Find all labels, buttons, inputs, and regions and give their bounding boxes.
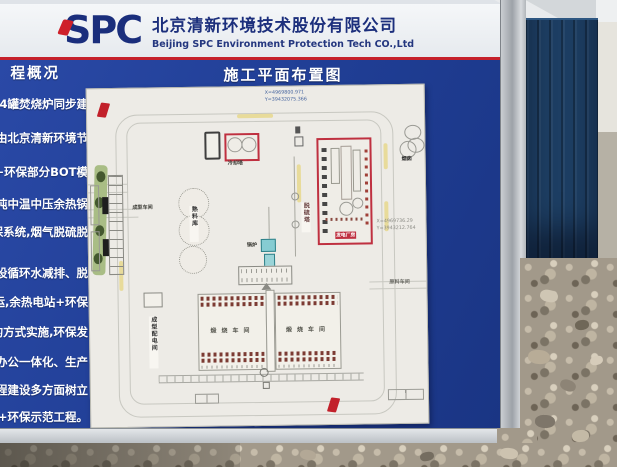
site-plan-drawing: X=4969800.971 Y=39432075.366 冷却塔	[86, 84, 430, 429]
sidebar-line: 电+环保示范工程。	[0, 409, 88, 425]
cooling-tower-circle	[241, 137, 256, 152]
building-strip	[108, 175, 124, 275]
equipment-row-icon	[321, 148, 327, 236]
calcination-hall-left: 煅烧车间	[198, 293, 268, 371]
desulfurization-tower-label: 脱硫塔	[301, 202, 310, 232]
kiln-row	[278, 295, 338, 300]
edge-building	[91, 231, 101, 271]
valve-icon	[292, 220, 300, 228]
site-sign-photo: SPC 北京清新环境技术股份有限公司 Beijing SPC Environme…	[0, 0, 617, 467]
raw-material-label: 原料车间	[389, 279, 409, 285]
sign-board: SPC 北京清新环境技术股份有限公司 Beijing SPC Environme…	[0, 0, 500, 447]
coordinate-x: X=4969736.29	[376, 218, 415, 224]
equipment-rect	[330, 148, 340, 184]
equipment-circle	[352, 198, 363, 209]
equipment-rect	[340, 146, 352, 200]
board-body: 施工平面布置图 程概况 64罐焚烧炉同步建 由北京清新环境节 C+环保部分BOT…	[0, 60, 500, 428]
cooling-tower-circle	[227, 137, 242, 152]
board-header: SPC 北京清新环境技术股份有限公司 Beijing SPC Environme…	[0, 4, 500, 57]
tick-row	[241, 278, 289, 283]
kiln-row	[278, 301, 338, 306]
kiln-row	[201, 352, 264, 357]
forming-workshop-label: 成型车间	[132, 204, 152, 210]
spc-logo: SPC	[64, 8, 141, 52]
tick-row	[202, 365, 265, 369]
equipment-dots	[365, 149, 369, 229]
tree-icon	[96, 171, 105, 182]
dark-building	[102, 197, 108, 214]
power-plant-building: 发电厂房	[316, 137, 372, 245]
kiln-row	[201, 358, 264, 363]
sidebar-line: 设的方式实施,环保发	[0, 324, 88, 340]
kiln-row	[278, 357, 338, 362]
legend-box-icon	[294, 136, 303, 146]
sidebar-heading: 程概况	[11, 62, 61, 83]
boiler-label: 锅炉	[247, 242, 257, 248]
valve-icon	[291, 192, 299, 200]
stone	[535, 414, 556, 428]
plan-title: 施工平面布置图	[203, 64, 363, 85]
equipment-rect	[353, 150, 362, 192]
clinker-silo-label: 熟料库	[189, 206, 199, 242]
coordinate-x: X=4969800.971	[265, 89, 307, 95]
cooling-tower-box	[224, 133, 259, 161]
forming-distribution-room-label: 成型配电间	[149, 316, 159, 368]
chimney-label: 烟囱	[402, 156, 412, 162]
kiln-row	[278, 351, 338, 356]
company-name-cn: 北京清新环境技术股份有限公司	[152, 12, 414, 36]
tick-row	[241, 269, 289, 274]
yellow-highlight	[237, 114, 273, 119]
sidebar-line: 投运,余热电站+环保	[0, 294, 88, 310]
sidebar-line: 步建设循环水减排、脱	[0, 265, 88, 281]
edge-building	[90, 185, 100, 225]
road-line	[369, 288, 426, 290]
coordinate-y: Y=3943212.764	[377, 225, 416, 231]
small-circle	[260, 368, 269, 377]
sidebar-line: 程、工程建设多方面树立	[0, 382, 88, 398]
cooling-tower-label: 冷却塔	[228, 160, 243, 166]
sidebar-line: 吨中温中压余热锅	[0, 196, 88, 212]
sidebar-line: 64罐焚烧炉同步建	[0, 96, 88, 112]
blue-container	[525, 18, 598, 268]
sidebar-line: 由北京清新环境节	[0, 130, 88, 146]
red-flag-icon	[97, 103, 110, 118]
boiler-block	[261, 239, 276, 252]
company-name-en: Beijing SPC Environment Protection Tech …	[152, 39, 414, 50]
kiln-row	[201, 296, 264, 301]
kiln-head-structure	[238, 266, 292, 286]
yellow-highlight	[383, 143, 387, 169]
sidebar-line: 保系统,烟气脱硫脱	[0, 224, 88, 240]
board-shadow	[0, 443, 240, 467]
company-name-block: 北京清新环境技术股份有限公司 Beijing SPC Environment P…	[152, 12, 414, 50]
gate-boxes	[195, 394, 219, 404]
kiln-row	[201, 302, 264, 307]
sidebar-line: C+环保部分BOT模	[0, 164, 88, 180]
outlined-building	[204, 132, 220, 160]
calcination-hall-right: 煅烧车间	[275, 292, 342, 370]
calcination-label-left: 煅烧车间	[199, 325, 266, 335]
power-plant-label: 发电厂房	[335, 232, 356, 239]
dark-building	[103, 239, 109, 256]
coordinates-right: X=4969736.29 Y=3943212.764	[376, 218, 425, 233]
coordinates-top: X=4969800.971 Y=39432075.366	[265, 89, 318, 104]
bright-edge	[598, 22, 617, 132]
sidebar-line: 生产办公一体化、生产	[0, 354, 88, 370]
utility-box	[143, 292, 162, 307]
tick-row	[279, 364, 339, 368]
gate-boxes	[388, 389, 424, 401]
legend-icon	[295, 126, 300, 133]
equipment-dots	[325, 218, 363, 222]
coordinate-y: Y=39432075.366	[265, 96, 307, 102]
small-square	[263, 382, 270, 389]
calcination-label-right: 煅烧车间	[276, 324, 340, 334]
